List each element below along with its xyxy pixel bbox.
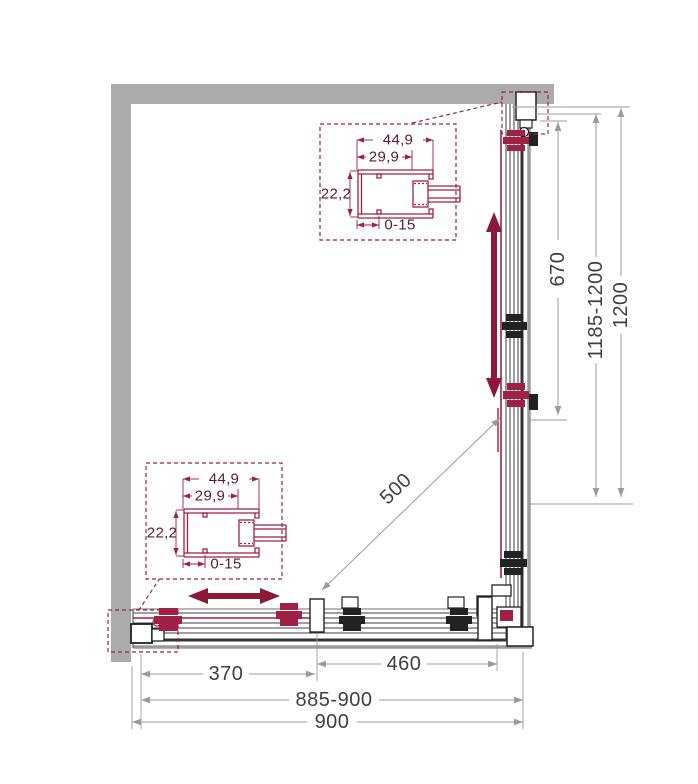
bottom-rail-end-bracket (478, 597, 492, 640)
dim-1200-label: 1200 (610, 282, 632, 329)
detail-top-adjust-label: 0-15 (384, 217, 415, 234)
slide-direction-arrow-vertical-icon (486, 212, 502, 398)
corner-shower-plan-drawing: 44,9 29,9 22,2 0-15 44,9 29,9 22,2 0-15 … (0, 0, 698, 784)
right-rail-top-roller (503, 130, 538, 151)
bottom-rail (133, 609, 532, 648)
detail-bottom-depth-label: 22,2 (147, 525, 177, 542)
detail-bottom-inner-width-label: 29,9 (195, 488, 225, 505)
dim-885-900-label: 885-900 (296, 689, 373, 711)
technical-drawing-canvas: 44,9 29,9 22,2 0-15 44,9 29,9 22,2 0-15 … (0, 0, 698, 784)
detail-top-inner-width-label: 29,9 (369, 149, 399, 166)
wall-top (111, 84, 554, 104)
detail-bottom-adjust-label: 0-15 (210, 556, 241, 573)
dim-460-label: 460 (387, 653, 422, 675)
bottom-rail-glass-bracket (310, 599, 324, 632)
detail-callout-top: 44,9 29,9 22,2 0-15 (320, 124, 460, 240)
dim-500-label: 500 (376, 469, 416, 509)
dim-670-label: 670 (547, 252, 569, 287)
dim-900-label: 900 (315, 711, 350, 733)
detail-callout-bottom: 44,9 29,9 22,2 0-15 (146, 463, 286, 579)
dim-370-label: 370 (209, 663, 244, 685)
detail-top-depth-label: 22,2 (321, 186, 351, 203)
wall-left (111, 84, 131, 662)
dim-1185-1200-label: 1185-1200 (585, 261, 607, 360)
bottom-rail-black-roller-1 (339, 597, 365, 631)
detail-bottom-outer-width-label: 44,9 (209, 471, 239, 488)
right-rail-top-bracket (516, 92, 536, 137)
bottom-rail-black-roller-2 (446, 597, 472, 631)
slide-direction-arrow-horizontal-icon (188, 588, 280, 604)
right-rail-knob (500, 551, 527, 575)
dimension-500 (322, 418, 500, 590)
detail-top-outer-width-label: 44,9 (383, 132, 413, 149)
